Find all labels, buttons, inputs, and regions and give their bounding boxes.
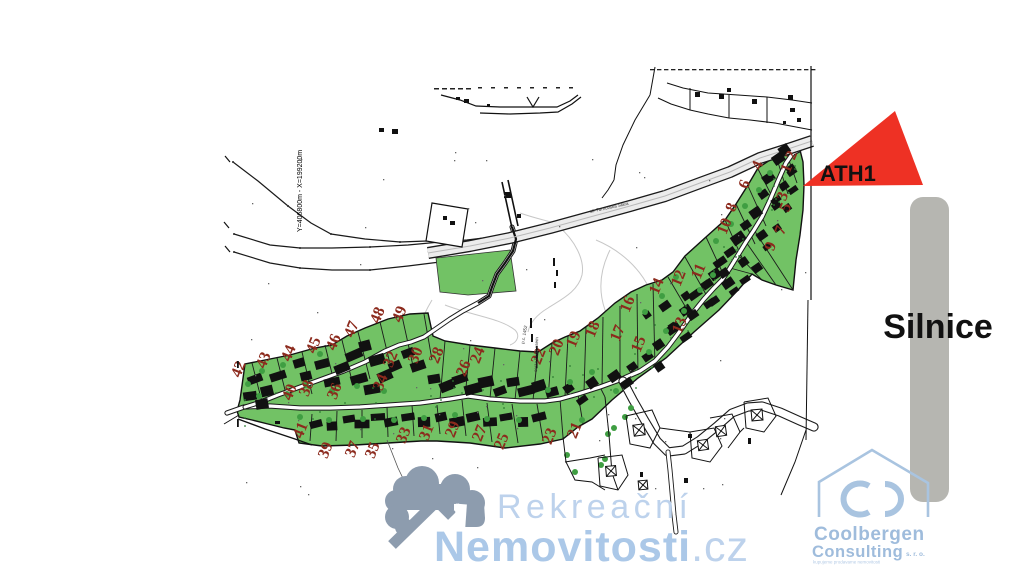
svg-text:Silnice: Silnice — [883, 308, 993, 346]
svg-text:Y=406800m - X=199200m: Y=406800m - X=199200m — [297, 150, 304, 232]
svg-text:ATH1: ATH1 — [820, 161, 876, 186]
svg-text:Nemovitosti.cz: Nemovitosti.cz — [434, 523, 749, 571]
svg-text:Consulting: Consulting — [812, 543, 903, 561]
svg-text:Coolbergen: Coolbergen — [814, 524, 925, 545]
svg-text:s. r. o.: s. r. o. — [906, 551, 925, 558]
svg-text:kupujeme prodavame nemovitosti: kupujeme prodavame nemovitosti — [813, 560, 880, 565]
svg-text:Rekreační: Rekreační — [497, 488, 692, 526]
